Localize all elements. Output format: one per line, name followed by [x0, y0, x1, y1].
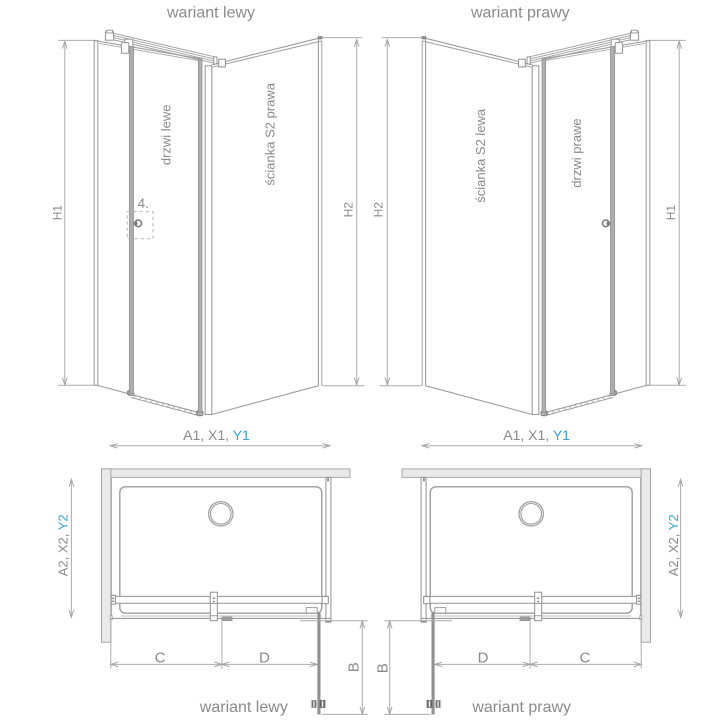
svg-text:H1: H1 [664, 205, 678, 221]
svg-text:A2, X2, Y2: A2, X2, Y2 [666, 514, 681, 576]
svg-text:C: C [155, 649, 166, 666]
svg-text:B: B [345, 662, 362, 672]
svg-text:C: C [580, 649, 591, 666]
svg-text:A1, X1, Y1: A1, X1, Y1 [183, 427, 250, 443]
svg-text:D: D [259, 649, 270, 666]
svg-text:H1: H1 [50, 205, 64, 221]
svg-text:wariant lewy: wariant lewy [166, 5, 255, 22]
svg-text:ścianka S2 prawa: ścianka S2 prawa [263, 82, 278, 185]
svg-text:D: D [478, 649, 489, 666]
svg-text:A1, X1, Y1: A1, X1, Y1 [503, 427, 570, 443]
svg-text:H2: H2 [372, 202, 386, 218]
svg-text:wariant prawy: wariant prawy [471, 699, 571, 716]
svg-text:4.: 4. [138, 196, 149, 211]
svg-text:A2, X2, Y2: A2, X2, Y2 [56, 514, 71, 576]
svg-text:H2: H2 [341, 202, 355, 218]
svg-text:drzwi lewe: drzwi lewe [158, 104, 173, 165]
svg-text:ścianka S2 lewa: ścianka S2 lewa [473, 108, 488, 203]
svg-text:wariant lewy: wariant lewy [199, 699, 288, 716]
svg-text:B: B [375, 663, 392, 673]
svg-text:drzwi prawe: drzwi prawe [569, 118, 584, 187]
svg-text:wariant prawy: wariant prawy [470, 5, 570, 22]
